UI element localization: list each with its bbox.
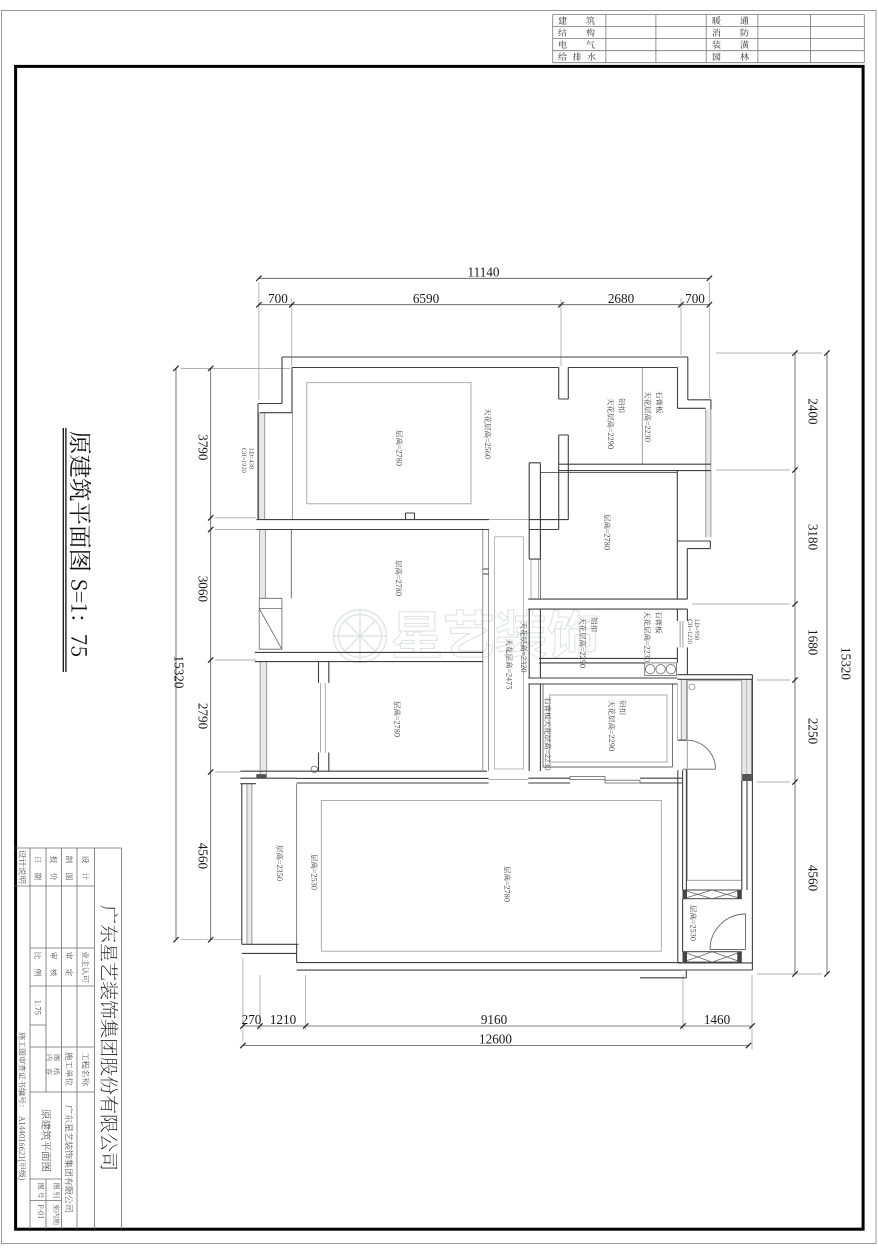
- svg-text:1210: 1210: [270, 1012, 297, 1027]
- svg-text:1680: 1680: [806, 629, 821, 656]
- svg-text:3790: 3790: [196, 434, 211, 461]
- svg-text:3060: 3060: [196, 576, 211, 603]
- svg-text:6590: 6590: [413, 291, 440, 306]
- svg-text:4560: 4560: [806, 865, 821, 892]
- svg-text:2400: 2400: [806, 398, 821, 425]
- svg-text:2250: 2250: [806, 718, 821, 745]
- svg-text:270: 270: [242, 1012, 262, 1027]
- svg-text:12600: 12600: [479, 1031, 512, 1046]
- svg-text:700: 700: [685, 291, 705, 306]
- svg-text:15320: 15320: [172, 656, 187, 689]
- svg-text:11140: 11140: [468, 265, 500, 280]
- svg-text:1460: 1460: [704, 1012, 731, 1027]
- svg-text:2680: 2680: [608, 291, 635, 306]
- svg-text:3180: 3180: [806, 524, 821, 551]
- svg-text:700: 700: [268, 291, 288, 306]
- svg-text:4560: 4560: [196, 843, 211, 870]
- svg-text:9160: 9160: [481, 1012, 508, 1027]
- svg-text:15320: 15320: [839, 647, 854, 680]
- svg-text:2790: 2790: [196, 703, 211, 730]
